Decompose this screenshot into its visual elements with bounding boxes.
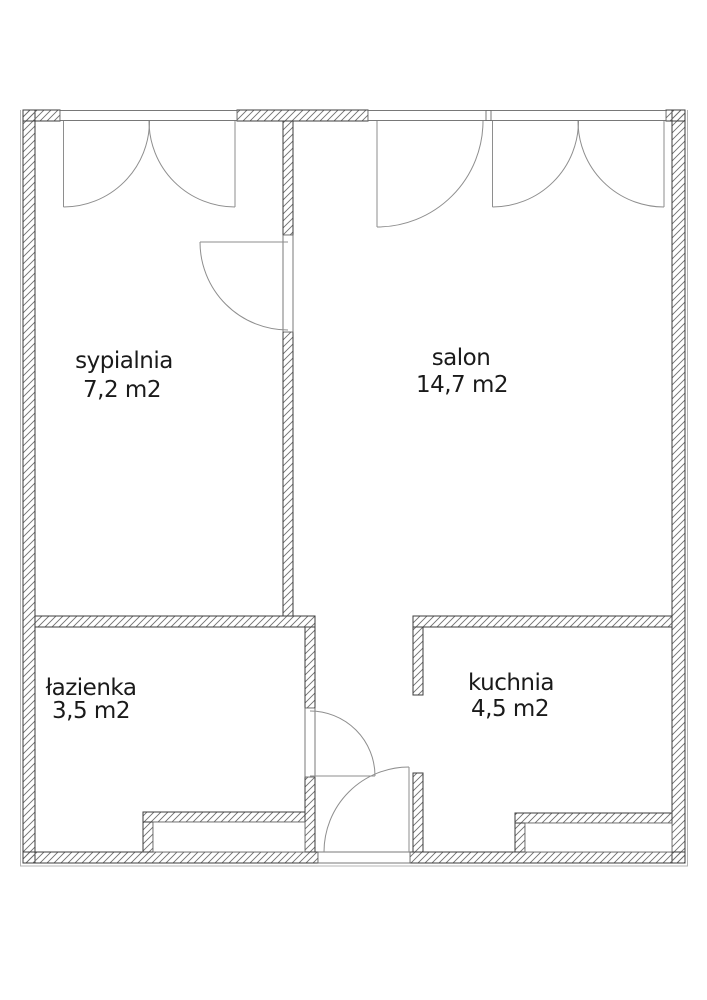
room-area-kuchnia: 4,5 m2 [471,696,549,722]
wall-kitchen-top [413,616,672,627]
room-area-salon: 14,7 m2 [416,372,508,398]
wall-exterior-left [23,110,35,863]
room-label-kuchnia: kuchnia 4,5 m2 [468,670,554,722]
salon-window-left-swing-arc [493,121,579,207]
wall-kitchen-left-lower [413,773,423,852]
entrance-door-swing-arc [324,767,409,852]
room-name-kuchnia: kuchnia [468,670,554,696]
wall-bathroom-top [35,616,315,627]
room-name-sypialnia: sypialnia [75,348,173,374]
bathroom-door-swing-arc [310,711,375,776]
wall-bathroom-right-lower [305,777,315,852]
room-label-lazienka: łazienka 3,5 m2 [46,675,137,724]
room-labels: sypialnia 7,2 m2 salon 14,7 m2 łazienka … [46,345,554,724]
wall-exterior-right [672,110,685,863]
balcony-door-swing-arc [377,121,483,227]
bathroom-shaft-void [153,822,305,852]
wall-kitchen-left-stub [413,627,423,695]
door-window-swings [64,121,665,852]
room-area-sypialnia: 7,2 m2 [83,377,161,403]
bedroom-window-right-swing-arc [149,121,235,207]
wall-top-left-of-bedroom-window [23,110,60,121]
room-area-lazienka: 3,5 m2 [52,698,130,724]
openings [60,111,666,864]
wall-top-between-windows [237,110,368,121]
wall-top-right-of-salon-window [666,110,685,121]
bedroom-door-jamb [283,235,293,332]
bathroom-door-jamb [305,708,315,777]
room-label-salon: salon 14,7 m2 [416,345,508,398]
plan-outer-boundary [21,110,688,866]
wall-bedroom-salon-upper [283,121,293,235]
salon-glazing-frame [368,111,666,121]
bedroom-window-frame [60,111,237,121]
wall-bathroom-niche-connector [143,822,153,852]
wall-bathroom-right-upper [305,627,315,708]
entrance-door-threshold [318,852,410,863]
wall-kitchen-niche-connector [515,823,525,852]
floor-plan-canvas: sypialnia 7,2 m2 salon 14,7 m2 łazienka … [0,0,707,1000]
wall-bottom-right-of-entrance [410,852,685,863]
walls [23,110,685,863]
wall-kitchen-niche-bar [515,813,672,823]
salon-glazing-divider [486,111,491,121]
salon-window-right-swing-arc [578,121,664,207]
kitchen-shaft-void [525,823,672,852]
room-label-sypialnia: sypialnia 7,2 m2 [75,348,173,403]
wall-bathroom-niche-bar [143,812,305,822]
floor-plan-drawing: sypialnia 7,2 m2 salon 14,7 m2 łazienka … [0,0,707,1000]
room-name-salon: salon [432,345,491,371]
bedroom-door-swing-arc [200,242,288,330]
wall-bedroom-salon-lower [283,332,293,616]
wall-bottom-left-of-entrance [23,852,318,863]
bedroom-window-left-swing-arc [64,121,150,207]
